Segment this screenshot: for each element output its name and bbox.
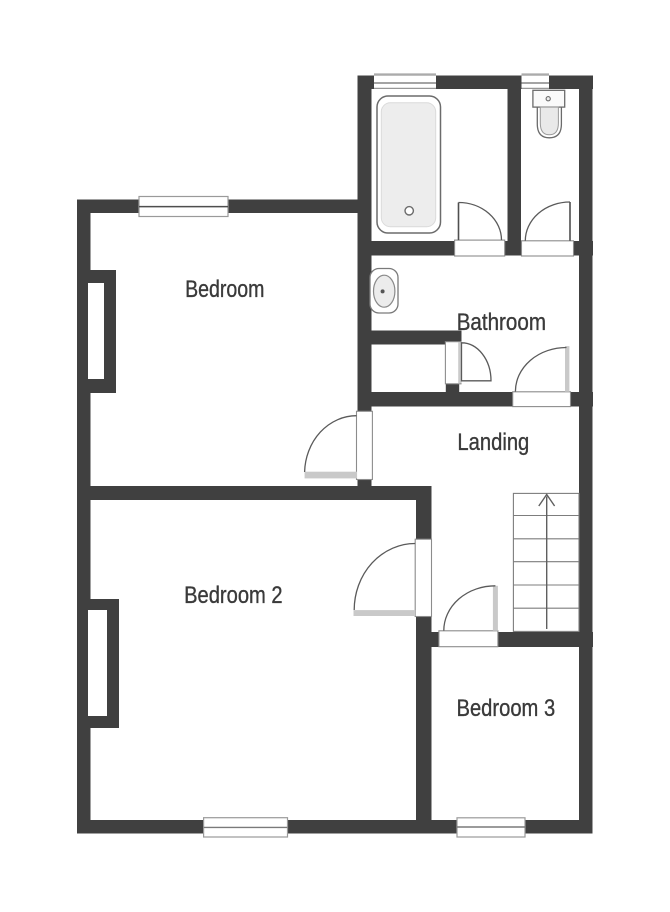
svg-text:Bedroom: Bedroom <box>185 276 264 303</box>
svg-text:Bathroom: Bathroom <box>457 309 546 336</box>
svg-text:Bedroom 3: Bedroom 3 <box>457 695 556 722</box>
svg-text:Landing: Landing <box>457 429 529 456</box>
svg-text:Bedroom 2: Bedroom 2 <box>184 582 283 609</box>
